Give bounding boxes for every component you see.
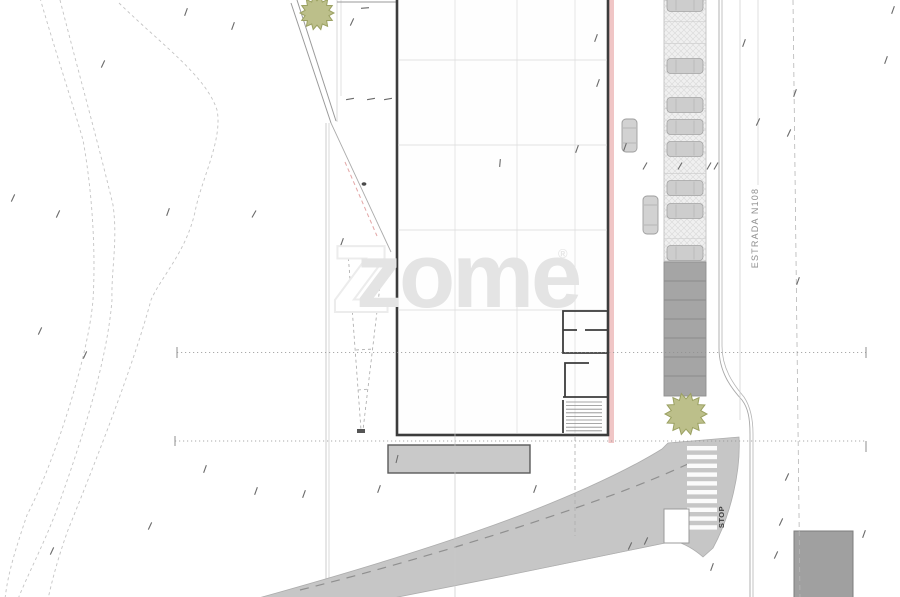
elevation-mark bbox=[255, 487, 258, 495]
car-icon bbox=[667, 246, 703, 261]
survey-point bbox=[362, 182, 367, 185]
road-edges bbox=[719, 0, 800, 597]
elevation-mark bbox=[167, 208, 170, 216]
elevation-mark bbox=[534, 485, 537, 493]
elevation-mark bbox=[341, 238, 344, 246]
elevation-mark bbox=[643, 163, 647, 170]
elevation-mark bbox=[785, 473, 788, 480]
elevation-mark bbox=[252, 211, 256, 218]
zebra-stripe bbox=[687, 490, 717, 494]
elevation-mark bbox=[743, 39, 746, 47]
elevation-mark bbox=[378, 485, 381, 493]
elevation-mark bbox=[774, 551, 777, 558]
site-plan-canvas: ESTRADA N108 STOP z zome ® bbox=[0, 0, 900, 597]
elevation-mark bbox=[303, 490, 306, 498]
zebra-stripe bbox=[687, 481, 717, 485]
elevation-mark bbox=[707, 163, 711, 170]
elevation-mark bbox=[892, 6, 895, 14]
zebra-stripe bbox=[687, 464, 717, 468]
zebra-stripe bbox=[687, 508, 717, 512]
site-plan-drawing: ESTRADA N108 STOP bbox=[0, 0, 900, 597]
elevation-mark bbox=[56, 210, 59, 217]
neighbor-building bbox=[794, 531, 853, 597]
elevation-mark bbox=[863, 530, 866, 538]
road-name-label: ESTRADA N108 bbox=[750, 188, 760, 268]
loading-dock bbox=[388, 445, 530, 473]
property-boundary bbox=[291, 0, 397, 597]
elevation-mark bbox=[384, 98, 392, 99]
elevation-mark bbox=[11, 194, 14, 201]
main-building bbox=[397, 0, 614, 443]
car-icon bbox=[643, 196, 658, 234]
elevation-mark bbox=[500, 159, 501, 167]
elevation-mark bbox=[204, 465, 207, 473]
car-icon bbox=[667, 142, 703, 157]
elevation-mark bbox=[361, 8, 369, 9]
elevation-mark bbox=[50, 547, 53, 554]
car-icon bbox=[622, 119, 637, 152]
zebra-stripe bbox=[687, 499, 717, 503]
elevation-mark bbox=[367, 98, 375, 99]
car-icon bbox=[667, 181, 703, 196]
car-icon bbox=[667, 120, 703, 135]
zebra-stripe bbox=[687, 516, 717, 520]
contour-lines bbox=[5, 0, 218, 597]
elevation-mark bbox=[350, 18, 353, 25]
stop-marking: STOP bbox=[717, 506, 726, 528]
street-cars bbox=[622, 119, 658, 234]
elevation-mark bbox=[185, 8, 188, 16]
elevation-mark bbox=[232, 22, 235, 30]
elevation-mark bbox=[346, 98, 354, 99]
tree-icon bbox=[665, 394, 707, 435]
car-icon bbox=[667, 98, 703, 113]
building-outline bbox=[397, 0, 608, 435]
elevation-mark bbox=[148, 522, 151, 529]
building-pink-strip bbox=[609, 0, 615, 443]
ramp-base-mark bbox=[357, 429, 365, 433]
elevation-mark bbox=[38, 327, 41, 334]
elevation-mark bbox=[787, 129, 790, 136]
parking-strip bbox=[664, 0, 706, 396]
car-icon bbox=[667, 0, 703, 12]
ramp-guide bbox=[348, 252, 384, 430]
zebra-stripe bbox=[687, 455, 717, 459]
elevation-mark bbox=[711, 563, 714, 571]
elevation-mark bbox=[779, 518, 782, 525]
traffic-island bbox=[664, 509, 689, 543]
zebra-stripe bbox=[687, 472, 717, 476]
zebra-stripe bbox=[687, 446, 717, 450]
car-icon bbox=[667, 204, 703, 219]
elevation-mark bbox=[714, 163, 718, 170]
zebra-stripe bbox=[687, 525, 717, 529]
elevation-mark bbox=[797, 277, 800, 285]
elevation-mark bbox=[885, 56, 888, 64]
elevation-mark bbox=[101, 60, 104, 67]
car-icon bbox=[667, 59, 703, 74]
boundary-pink-dashes bbox=[345, 162, 377, 236]
